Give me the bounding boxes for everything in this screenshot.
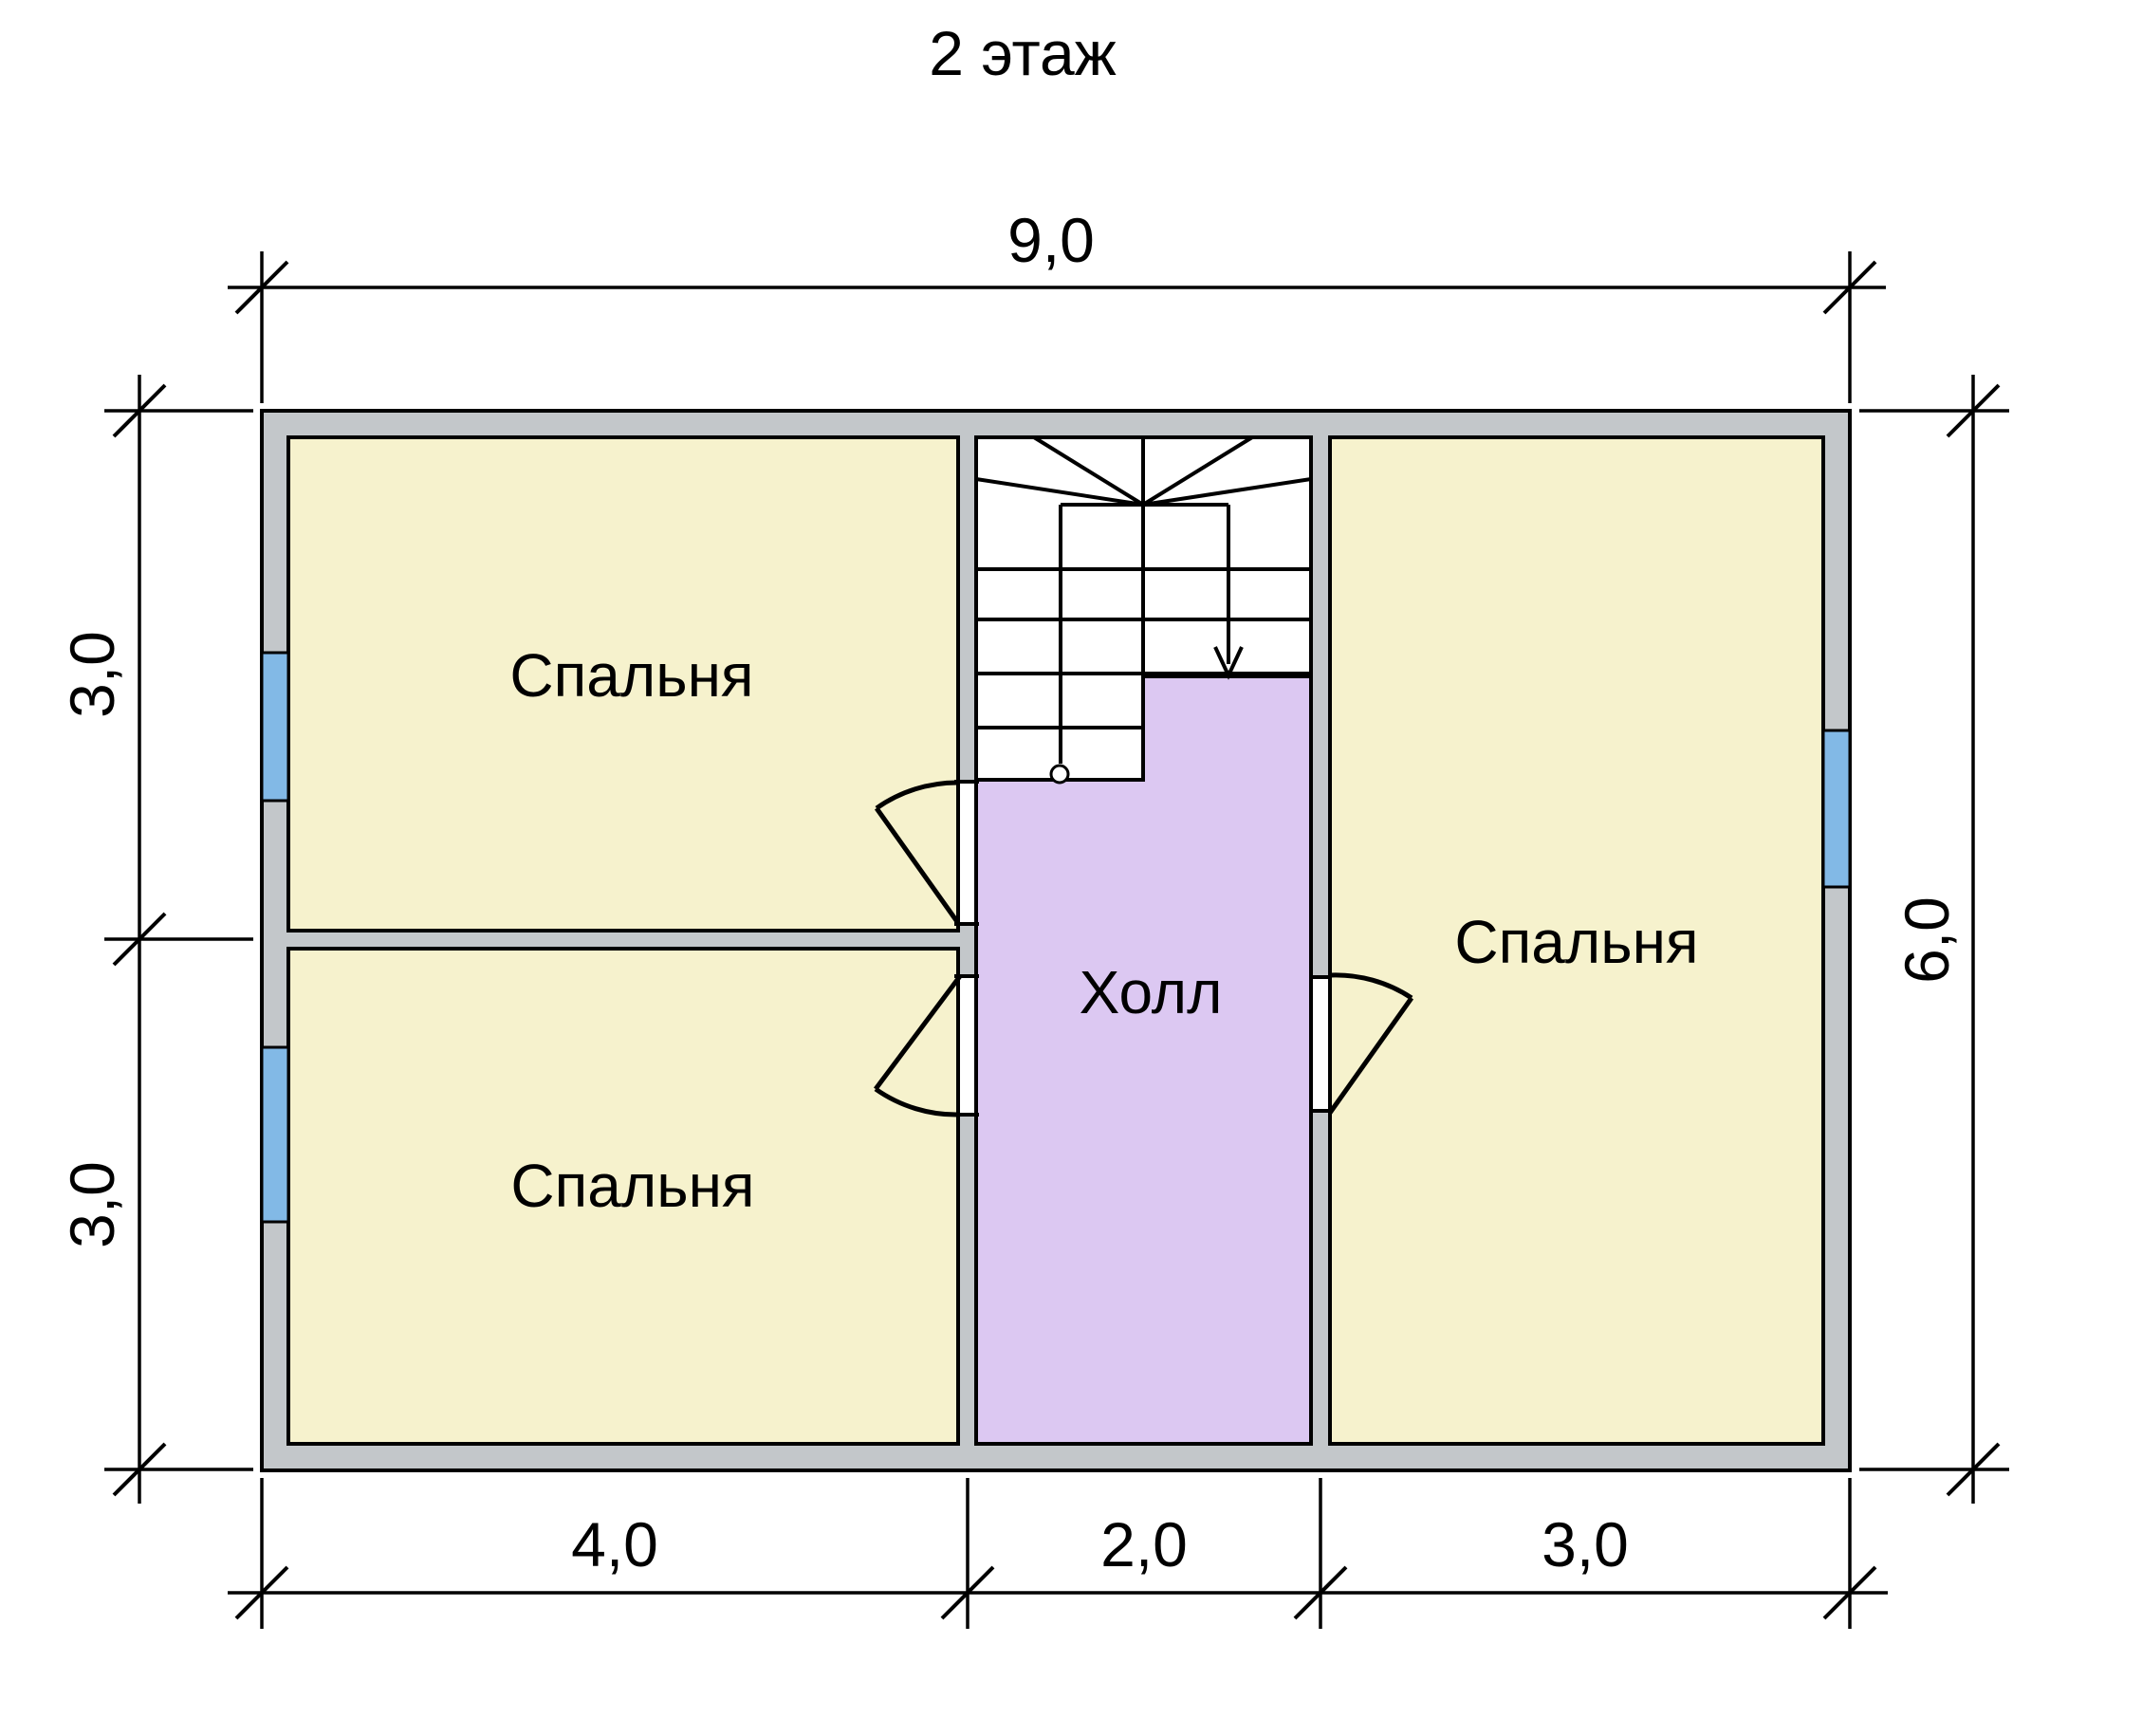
dim-label-bottom-right: 3,0 (1542, 1509, 1629, 1579)
dim-label-bottom-left: 4,0 (571, 1509, 658, 1579)
window-left-bottom (262, 1047, 288, 1222)
stair-newel-circle (1051, 766, 1068, 783)
page-title: 2 этаж (929, 18, 1117, 88)
dim-label-bottom-middle: 2,0 (1100, 1509, 1188, 1579)
room-label-bedroom-right: Спальня (1454, 908, 1698, 976)
window-left-top (262, 653, 288, 801)
room-label-hall: Холл (1080, 958, 1223, 1026)
dim-label-left-bottom: 3,0 (57, 1161, 127, 1248)
window-right (1823, 730, 1850, 887)
dim-label-total-height: 6,0 (1892, 896, 1962, 984)
door-gap-bedroom-bottom-left (960, 976, 974, 1115)
door-gap-bedroom-top-left (960, 782, 974, 924)
door-gap-bedroom-right (1313, 977, 1328, 1111)
room-hall (976, 676, 1311, 1444)
floor-plan-page: 2 этаж 9,0 4,0 2,0 3,0 3,0 3,0 6,0 Спаль… (0, 0, 2142, 1731)
dim-label-total-width: 9,0 (1007, 205, 1095, 275)
dim-label-left-top: 3,0 (57, 631, 127, 718)
room-label-bedroom-bottom-left: Спальня (510, 1152, 754, 1220)
floor-plan-svg: 2 этаж 9,0 4,0 2,0 3,0 3,0 3,0 6,0 Спаль… (0, 0, 2142, 1731)
room-label-bedroom-top-left: Спальня (509, 641, 753, 710)
